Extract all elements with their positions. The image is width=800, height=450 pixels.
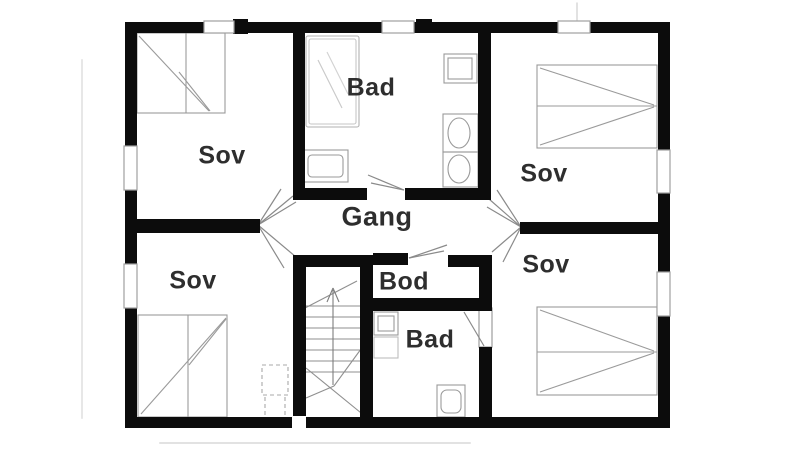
floorplan-canvas: Sov Bad Sov Gang Sov Bod Bad Sov <box>0 0 800 450</box>
door-swing-bad-top <box>368 175 404 190</box>
wall-outer-right <box>658 22 670 428</box>
wall-stair-right <box>360 255 373 417</box>
room-label-sov-top-left: Sov <box>198 142 245 171</box>
room-bad-top <box>305 33 478 188</box>
sink-cabinet <box>374 312 398 358</box>
toilet-upper <box>443 114 478 152</box>
wall-outer-bottom-right <box>304 417 670 428</box>
stair-winder-line <box>306 386 334 398</box>
wall-bad-gang-right <box>405 188 487 200</box>
door-swing-gang-left <box>258 189 296 268</box>
window-right-sovBR <box>657 272 670 316</box>
wall-nub <box>416 19 432 33</box>
bathtub <box>303 150 348 182</box>
wall-outer-bottom-left <box>125 417 292 428</box>
window-top-sovTL <box>204 21 234 33</box>
wall-stair-left <box>293 255 306 417</box>
bed-bottom-right <box>537 307 657 395</box>
room-label-sov-top-right: Sov <box>520 160 567 189</box>
wall-bad-gang-left <box>293 188 367 200</box>
room-sov-bottom-left <box>137 233 293 417</box>
bed-top-left <box>137 33 225 113</box>
stair-winder-line <box>334 349 361 386</box>
door-bad-bottom <box>464 308 492 347</box>
toilet-lower <box>443 152 478 187</box>
window-left-sovBL <box>124 264 137 308</box>
room-label-bad-bottom: Bad <box>406 326 455 355</box>
bed-top-right <box>537 65 657 148</box>
window-top-sovTR <box>558 21 590 33</box>
stair-winder-line <box>306 368 366 417</box>
window-right-sovTR <box>657 150 670 193</box>
staircase <box>305 281 366 417</box>
room-label-sov-bottom-left: Sov <box>169 267 216 296</box>
wall-bod-top-left <box>373 253 408 265</box>
wall-nub <box>233 19 248 34</box>
door-swing-bod <box>409 245 447 258</box>
wall-bad-sovTR <box>478 33 491 200</box>
room-sov-top-left <box>137 33 293 219</box>
window-left-sovTL <box>124 146 137 190</box>
up-arrow-icon <box>327 288 339 385</box>
wall-gap-bottom <box>292 416 306 430</box>
room-label-bad-top: Bad <box>347 74 396 103</box>
room-label-sov-bottom-right: Sov <box>522 251 569 280</box>
wall-bod-bad-divider <box>360 298 492 311</box>
wall-outer-left <box>125 22 137 428</box>
toilet-bottom <box>437 385 465 417</box>
room-label-gang: Gang <box>341 202 412 233</box>
wall-left-sovs-divider <box>137 219 260 233</box>
wall-bad-right-lower <box>479 347 492 417</box>
room-label-bod: Bod <box>379 268 429 297</box>
door-swing-gang-right <box>487 190 521 262</box>
wall-sovTL-bad <box>293 33 305 200</box>
bed-bottom-left <box>138 315 227 417</box>
window-top-bad <box>382 21 414 33</box>
room-sov-top-right <box>491 33 658 222</box>
stair-break-line <box>305 281 357 308</box>
room-sov-bottom-right <box>492 234 658 417</box>
washbasin <box>444 54 477 83</box>
wall-right-sovs-divider <box>520 222 658 234</box>
dresser-dashed <box>262 365 288 415</box>
